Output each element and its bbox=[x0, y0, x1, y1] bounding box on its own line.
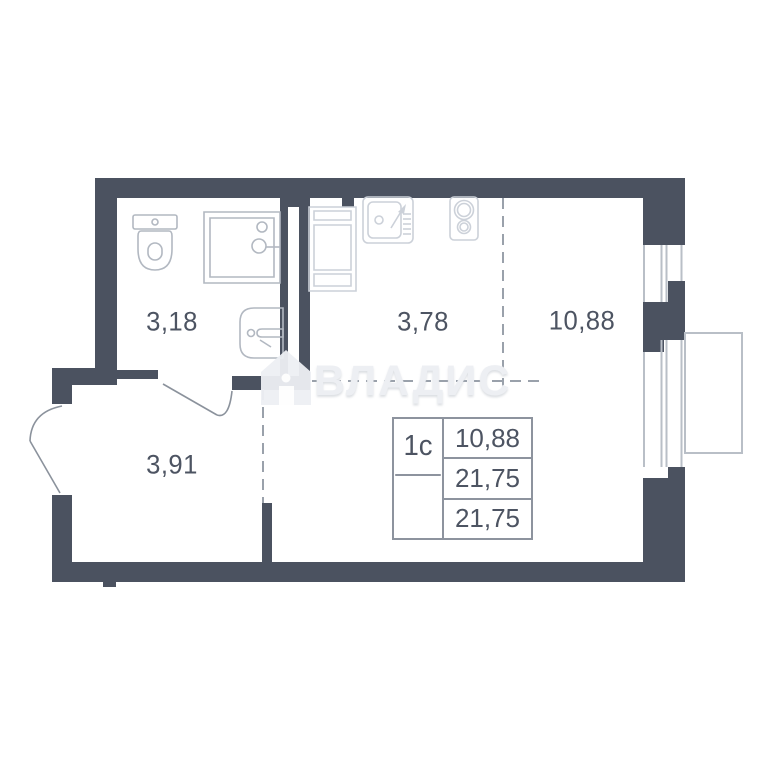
window-icon-upper bbox=[644, 245, 682, 302]
info-table-values-column: 10,88 21,75 21,75 bbox=[444, 419, 531, 538]
bathroom-door-swing bbox=[163, 384, 232, 416]
area-label-living-room: 10,88 bbox=[549, 306, 616, 337]
floor-plan: ВЛАДИС 3,18 3,78 10,88 3,91 1с 10,88 21,… bbox=[0, 0, 764, 768]
area-label-bathroom: 3,18 bbox=[146, 307, 198, 338]
toilet-icon bbox=[133, 215, 177, 270]
kitchen-sink-icon bbox=[363, 197, 413, 243]
watermark-text: ВЛАДИС bbox=[314, 357, 514, 406]
stove-icon bbox=[450, 197, 478, 240]
area-label-kitchen: 3,78 bbox=[397, 307, 449, 338]
bathroom-sink-icon bbox=[240, 308, 283, 358]
kitchen-cabinet-icon bbox=[309, 207, 356, 291]
apartment-type-cell: 1с bbox=[395, 419, 441, 476]
living-area-cell: 10,88 bbox=[444, 419, 531, 459]
area-label-hallway: 3,91 bbox=[146, 450, 198, 481]
apartment-info-table: 1с 10,88 21,75 21,75 bbox=[392, 417, 533, 540]
info-table-left-column: 1с bbox=[394, 419, 444, 538]
full-area-cell: 21,75 bbox=[444, 500, 531, 538]
balcony-outline bbox=[685, 333, 742, 453]
shower-icon bbox=[204, 212, 280, 283]
entrance-door-swing bbox=[30, 406, 62, 493]
info-table-empty-cell bbox=[394, 476, 442, 538]
total-area-cell: 21,75 bbox=[444, 459, 531, 499]
window-icon-lower bbox=[644, 340, 682, 467]
